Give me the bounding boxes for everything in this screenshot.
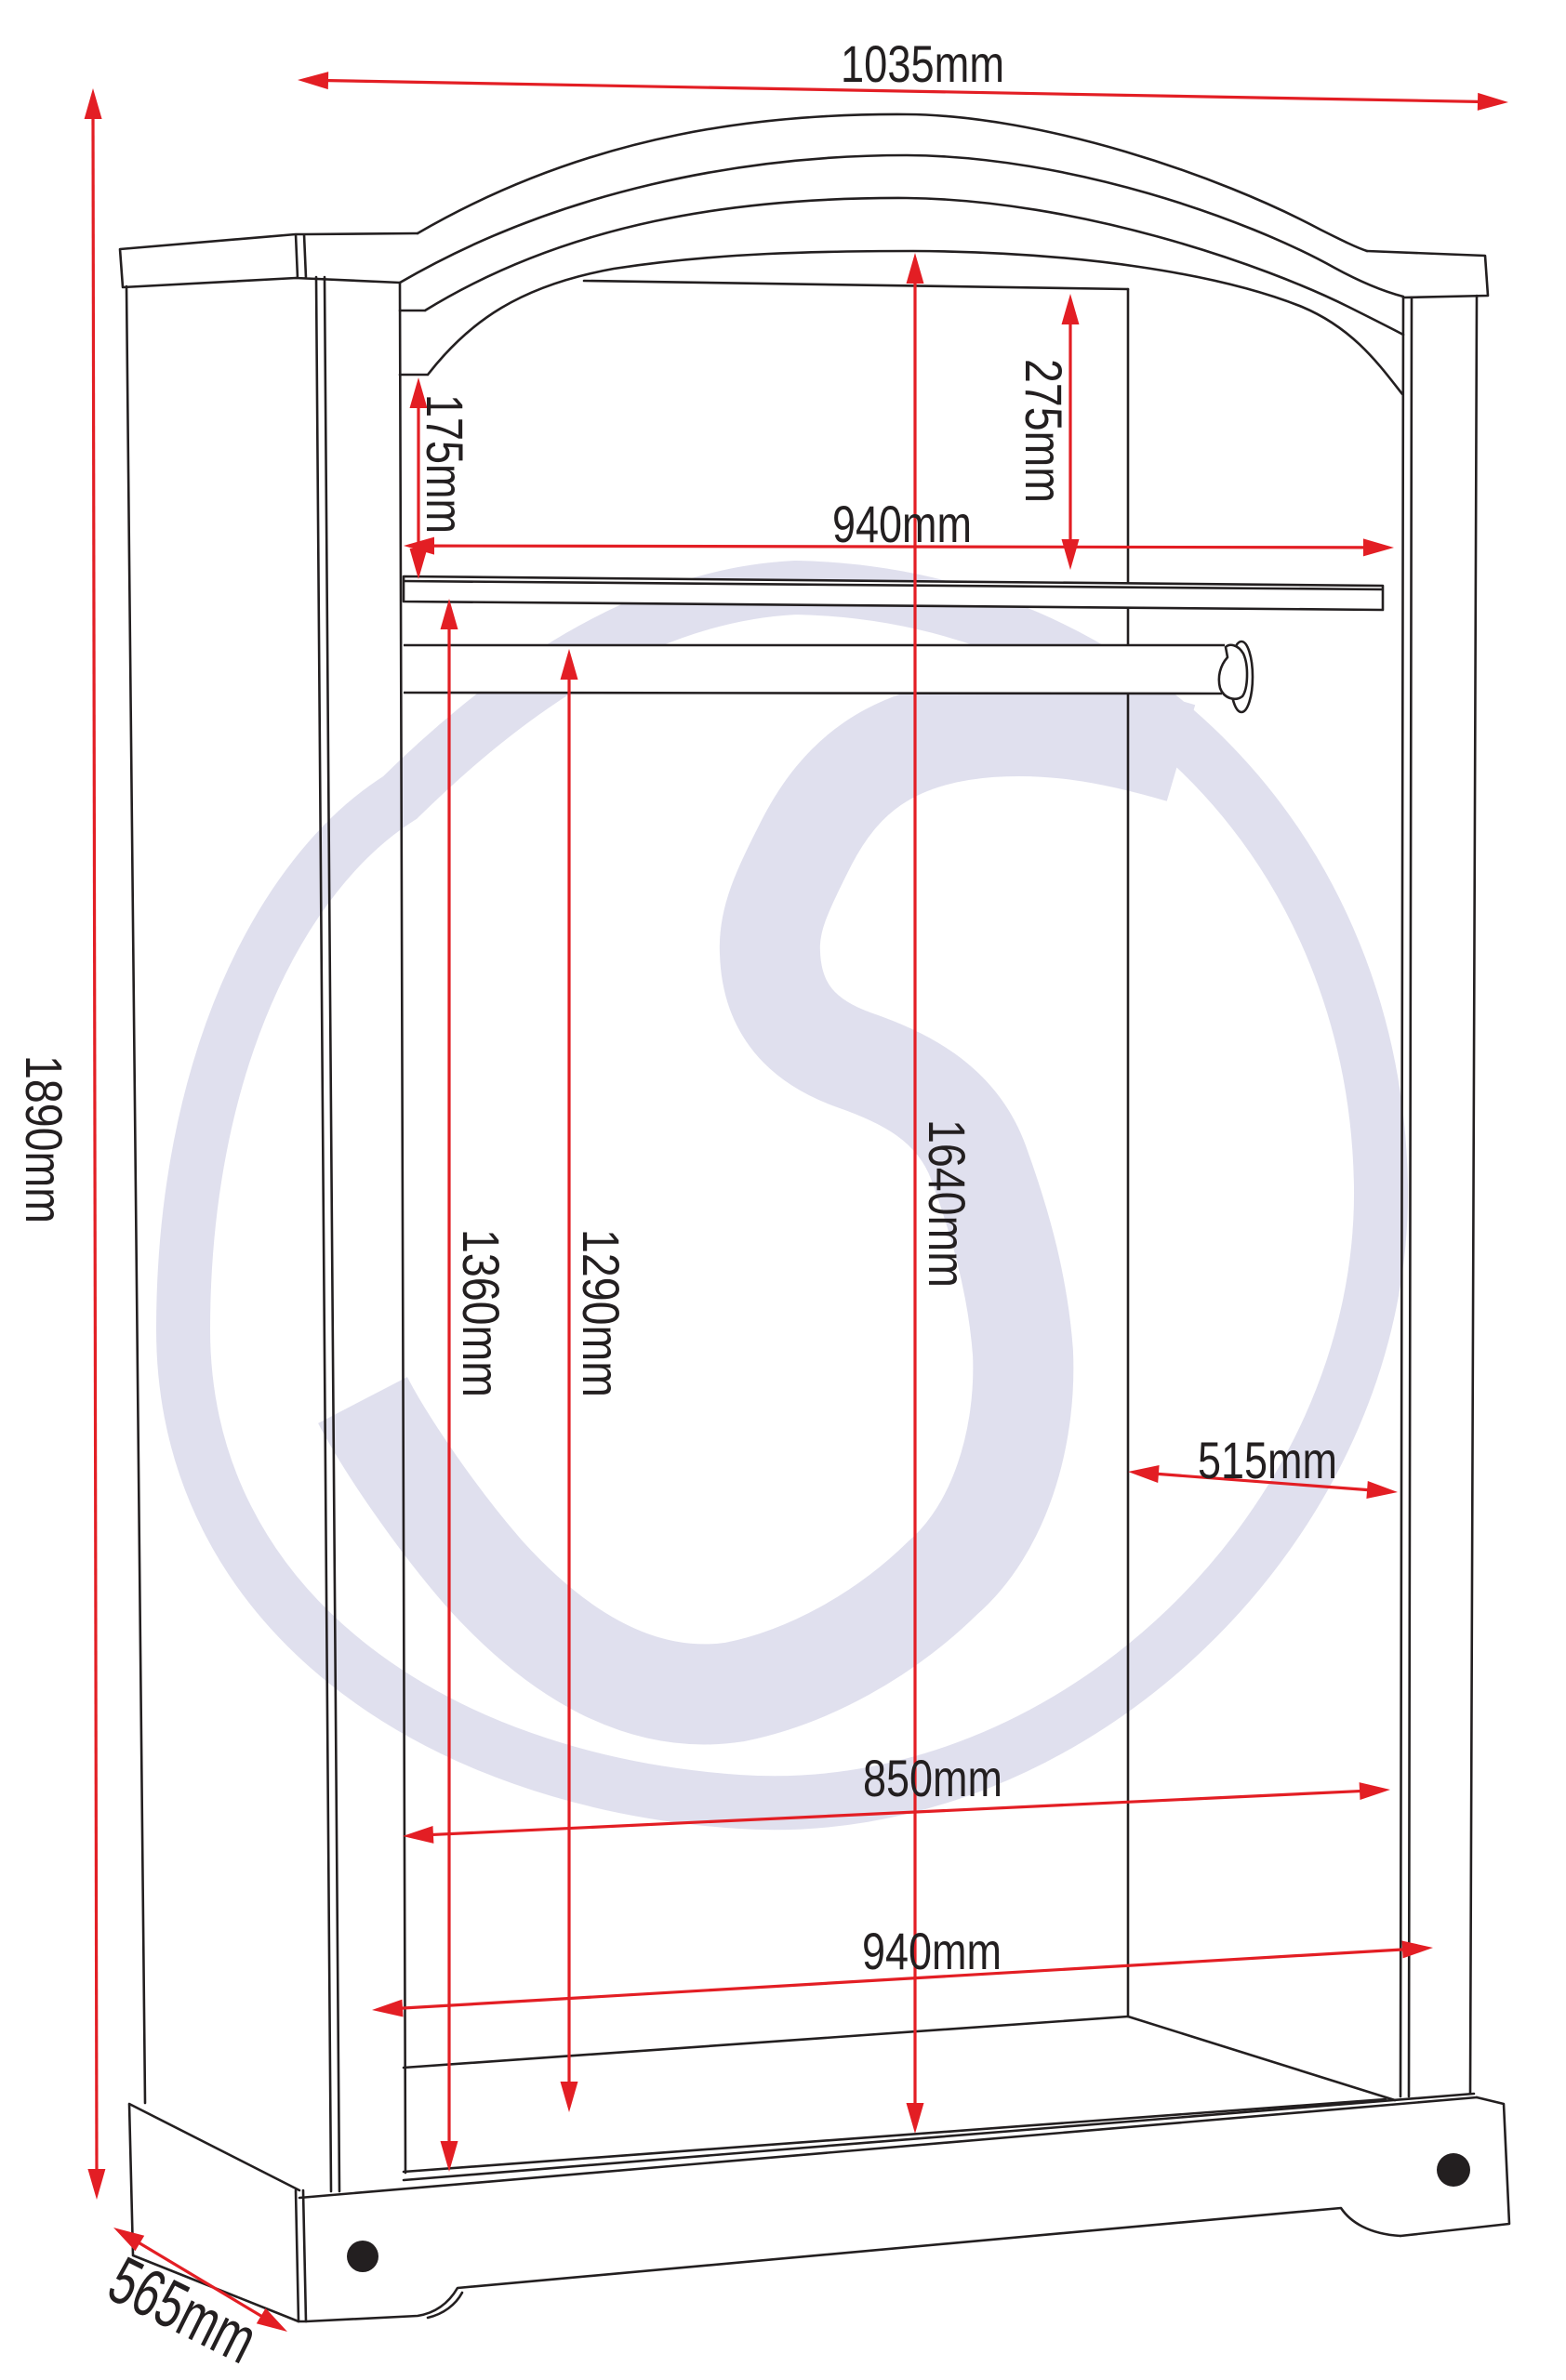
svg-text:275mm: 275mm	[1015, 359, 1073, 503]
svg-text:940mm: 940mm	[862, 1922, 1002, 1980]
svg-text:850mm: 850mm	[863, 1749, 1002, 1807]
svg-text:175mm: 175mm	[416, 394, 474, 534]
svg-text:1290mm: 1290mm	[572, 1229, 630, 1397]
svg-text:1035mm: 1035mm	[841, 34, 1004, 93]
svg-text:565mm: 565mm	[98, 2243, 268, 2378]
svg-text:1890mm: 1890mm	[15, 1055, 73, 1223]
svg-text:515mm: 515mm	[1198, 1431, 1337, 1489]
svg-text:1640mm: 1640mm	[918, 1119, 976, 1288]
svg-text:1360mm: 1360mm	[452, 1229, 511, 1397]
svg-text:940mm: 940mm	[832, 495, 972, 553]
